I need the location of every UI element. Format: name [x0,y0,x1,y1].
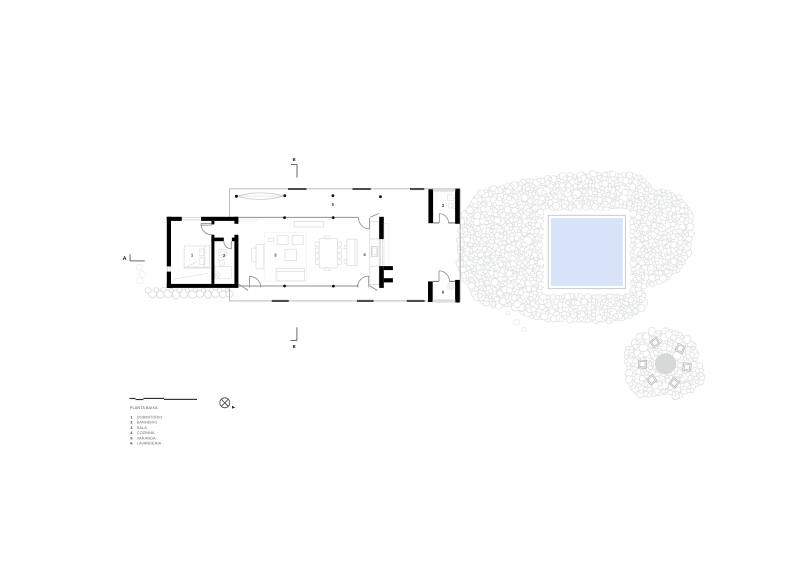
svg-text:6: 6 [130,442,132,446]
svg-text:DORMITÓRIO: DORMITÓRIO [137,414,163,419]
svg-text:COZINHA: COZINHA [137,431,155,435]
svg-text:LAVANDERIA: LAVANDERIA [137,442,162,446]
svg-text:SALA: SALA [137,426,147,430]
svg-text:VARANDA: VARANDA [137,436,156,440]
svg-text:PLANTA BAIXA: PLANTA BAIXA [130,406,158,410]
svg-text:1: 1 [130,415,132,419]
svg-text:3: 3 [130,426,132,430]
svg-text:B: B [293,157,296,162]
svg-text:BANHEIRO: BANHEIRO [137,421,158,425]
svg-text:A: A [123,256,127,262]
svg-text:B: B [293,344,296,349]
svg-text:5: 5 [130,436,132,440]
svg-text:2: 2 [130,421,132,425]
